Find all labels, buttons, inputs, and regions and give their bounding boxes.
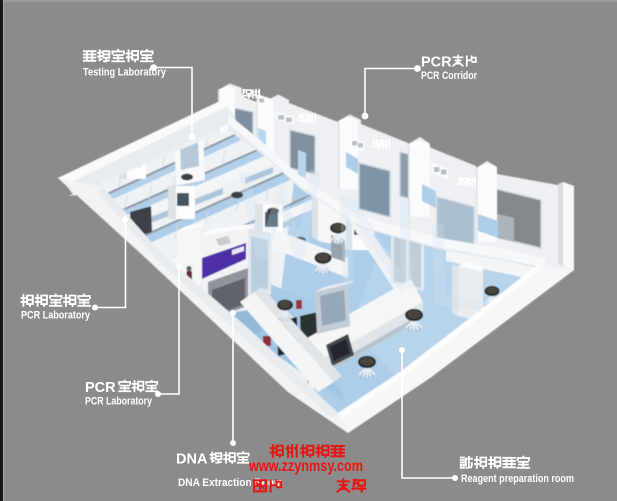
- svg-text:PCR Corridor: PCR Corridor: [421, 70, 478, 82]
- svg-text:PCR: PCR: [85, 380, 116, 396]
- svg-text:PCR Laboratory: PCR Laboratory: [85, 396, 153, 408]
- svg-text:DNA Extraction Room: DNA Extraction Room: [178, 477, 283, 489]
- svg-text:www.zzynmsy.com: www.zzynmsy.com: [248, 458, 363, 475]
- svg-text:PCR: PCR: [421, 55, 452, 71]
- svg-text:PCR Laboratory: PCR Laboratory: [21, 310, 91, 322]
- svg-text:DNA: DNA: [176, 452, 208, 468]
- svg-text:Reagent preparation room: Reagent preparation room: [461, 473, 574, 485]
- svg-text:Testing Laboratory: Testing Laboratory: [83, 67, 167, 79]
